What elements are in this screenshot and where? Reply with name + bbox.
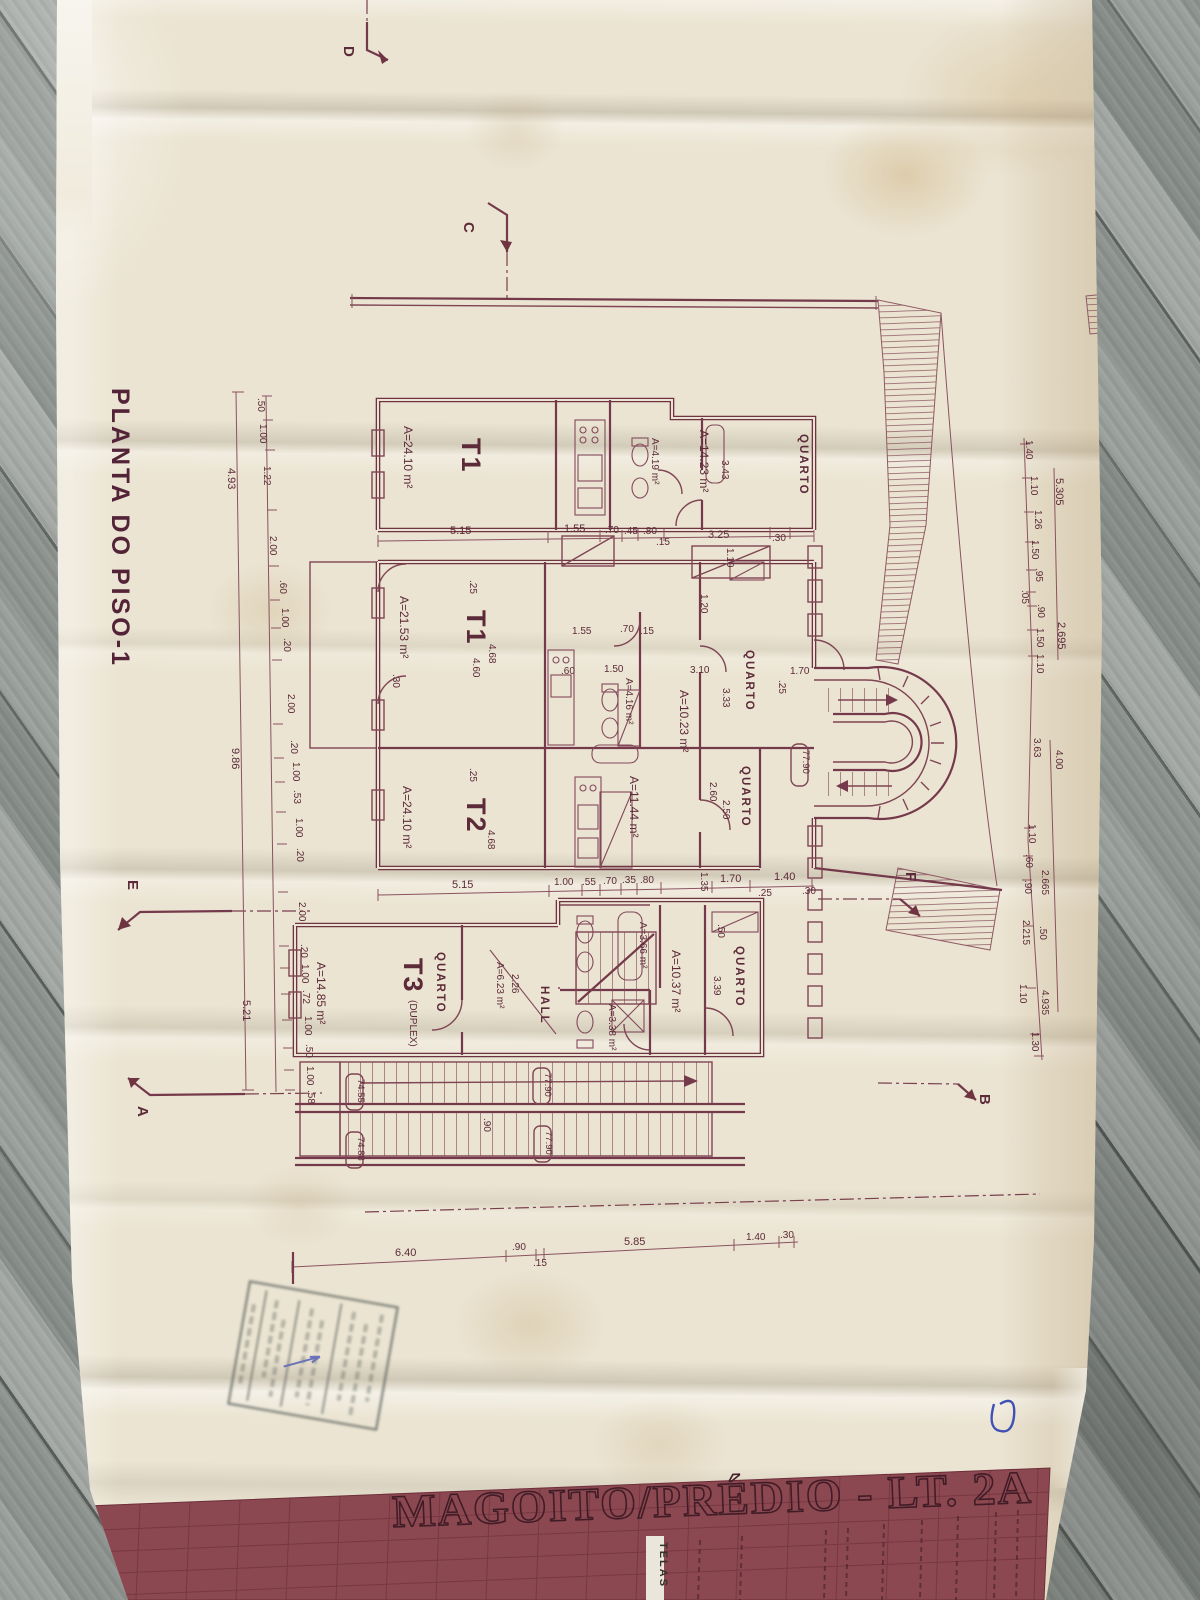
dim-label: 2.60 bbox=[707, 782, 718, 802]
section-marker-a: A bbox=[128, 1078, 322, 1117]
dim-label: .60 bbox=[1023, 854, 1034, 868]
dim-label: 1.20 bbox=[698, 594, 709, 614]
dim-label: 3.25 bbox=[708, 529, 729, 541]
section-marker-c: C bbox=[460, 203, 512, 300]
dim-label: .25 bbox=[467, 580, 478, 594]
dim-total: 5.305 bbox=[1053, 478, 1065, 506]
level-7488: 74.88 bbox=[355, 1137, 366, 1161]
dim-label: 1.22 bbox=[261, 466, 272, 486]
photo-of-floor-plan: D C E A F bbox=[0, 0, 1200, 1600]
dim-label: .58 bbox=[305, 1090, 316, 1104]
dim-label: 2.00 bbox=[285, 694, 296, 714]
dim-label: .90 bbox=[512, 1242, 526, 1253]
section-marker-b: B bbox=[878, 1083, 993, 1105]
dimension-chain-right: 5.305 2.695 1.40 1.10 1.26 1.50 .95 .05 … bbox=[1017, 438, 1067, 1060]
unit-label-t1-mid: T1 bbox=[461, 610, 491, 646]
dim-label: 1.00 bbox=[304, 1066, 315, 1086]
dim-label: 1.55 bbox=[564, 523, 585, 535]
dim-label: 1.40 bbox=[774, 871, 795, 883]
dim-label: 1.55 bbox=[572, 626, 592, 637]
dim-label: .90 bbox=[481, 1118, 492, 1132]
section-letter-c: C bbox=[460, 222, 477, 233]
dim-label: .35 bbox=[622, 875, 636, 886]
dim-total: 9.86 bbox=[229, 748, 241, 769]
dim-label: 4.60 bbox=[470, 658, 481, 678]
dim-label: 1.00 bbox=[299, 964, 310, 984]
dim-label: .50 bbox=[715, 924, 726, 938]
level-7455: 74.55 bbox=[355, 1079, 366, 1103]
section-letter-f: F bbox=[902, 872, 919, 881]
blue-pen-mark bbox=[992, 1401, 1015, 1432]
dim-label: 1.00 bbox=[554, 877, 574, 888]
dim-label: 1.10 bbox=[1017, 984, 1028, 1004]
section-letter-a: A bbox=[134, 1106, 151, 1117]
unit-labels: T1 A=24.10 m² T1 A=21.53 m² T2 A=24.10 m… bbox=[314, 426, 491, 1047]
dim-label: .70 bbox=[603, 876, 617, 887]
dim-label: 1.35 bbox=[698, 872, 709, 892]
dim-label: .50 bbox=[303, 1044, 314, 1058]
level-7790-upper-flight: 77.90 bbox=[542, 1073, 553, 1097]
dim-label: 3.43 bbox=[719, 460, 730, 480]
level-7790-stair: 77.90 bbox=[800, 750, 811, 774]
main-staircase: 77.90 bbox=[791, 667, 956, 819]
dim-label: 3.10 bbox=[690, 665, 710, 676]
dim-label: 5.15 bbox=[450, 525, 471, 537]
dim-label: 1.70 bbox=[720, 873, 741, 885]
dim-stair-width: 2.26 bbox=[509, 974, 520, 994]
dim-label: 1.40 bbox=[746, 1232, 766, 1243]
dim-label: .20 bbox=[298, 944, 309, 958]
unit-area-t3: A=14.85 m² bbox=[314, 962, 328, 1024]
dim-label: .45 bbox=[624, 526, 638, 537]
dim-label: .70 bbox=[620, 624, 634, 635]
dim-label: .05 bbox=[1019, 590, 1030, 604]
dim-label: 6.40 bbox=[395, 1247, 416, 1259]
area-bath-b: A=3.66 m² bbox=[637, 922, 648, 969]
blueprint-sheet: D C E A F bbox=[0, 0, 1200, 1600]
dimension-chain-top: 5.15 1.55 .70 .45 .80 3.25 .30 3.43 1.10… bbox=[378, 460, 814, 568]
unit-suffix-t3: (DUPLEX) bbox=[407, 1000, 418, 1047]
dim-label: .95 bbox=[1033, 568, 1044, 582]
unit-area-t1-top: A=24.10 m² bbox=[401, 426, 415, 488]
dim-label: 1.50 bbox=[1029, 540, 1040, 560]
section-letter-b: B bbox=[976, 1094, 993, 1105]
unit-label-t2: T2 bbox=[461, 798, 491, 834]
dim-label: .25 bbox=[467, 768, 478, 782]
dim-label: .80 bbox=[643, 526, 657, 537]
area-bath-top: A=4.19 m² bbox=[649, 438, 660, 485]
dim-label: .20 bbox=[294, 848, 305, 862]
room-label-quarto-3: QUARTO bbox=[739, 766, 751, 828]
dim-label: 2.665 bbox=[1039, 870, 1050, 895]
dim-label: .30 bbox=[802, 886, 816, 897]
dim-label: 1.00 bbox=[302, 1016, 313, 1036]
dim-label: 2.50 bbox=[720, 800, 731, 820]
area-bed-b: A=11.44 m² bbox=[627, 776, 641, 837]
dim-label: 2.215 bbox=[1020, 920, 1031, 945]
unit-label-t1-top: T1 bbox=[456, 438, 486, 474]
dim-label: .50 bbox=[255, 398, 266, 412]
unit-area-t1-mid: A=21.53 m² bbox=[397, 596, 411, 658]
dim-label: 1.10 bbox=[1028, 476, 1039, 496]
dim-total: 5.21 bbox=[240, 1000, 252, 1021]
dim-label: 4.935 bbox=[1039, 990, 1050, 1015]
dim-label: .15 bbox=[656, 537, 670, 548]
reference-line bbox=[365, 1194, 1040, 1212]
dim-label: .70 bbox=[605, 525, 619, 536]
area-bath-mid: A=4.16 m² bbox=[623, 678, 634, 725]
dim-label: 5.85 bbox=[624, 1236, 645, 1248]
dim-label: 1.00 bbox=[293, 818, 304, 838]
dimension-chain-bottom: 6.40 .90 .15 5.85 1.40 .30 bbox=[292, 1230, 798, 1284]
dim-label: 2.00 bbox=[267, 536, 278, 556]
dim-label: 3.33 bbox=[720, 688, 731, 708]
unit-label-t3: T3 bbox=[398, 958, 428, 994]
dim-label: .30 bbox=[772, 533, 786, 544]
room-label-quarto-4: QUARTO bbox=[434, 952, 446, 1014]
dim-label: 1.30 bbox=[1029, 1032, 1040, 1052]
dim-label: 1.00 bbox=[279, 608, 290, 628]
dim-label: 4.00 bbox=[1053, 750, 1064, 770]
floor-plan-drawing: D C E A F bbox=[0, 0, 1200, 1600]
dim-label: .90 bbox=[1022, 880, 1033, 894]
dim-label: 1.10 bbox=[1034, 654, 1045, 674]
dim-label: .72 bbox=[300, 990, 311, 1004]
dim-label: 3.63 bbox=[1031, 738, 1042, 758]
dim-label: .20 bbox=[281, 638, 292, 652]
area-bed-top: A=14.23 m² bbox=[697, 430, 711, 492]
dim-label: .30 bbox=[390, 674, 401, 688]
dim-label: 1.00 bbox=[290, 762, 301, 782]
dim-label: .50 bbox=[1037, 926, 1048, 940]
telas-tag: TELAS bbox=[657, 1542, 669, 1588]
unit-area-t2: A=24.10 m² bbox=[400, 786, 414, 848]
section-marker-d: D bbox=[340, 0, 388, 64]
drawing-title: PLANTA DO PISO-1 bbox=[106, 388, 134, 668]
title-block: MAGOITO/PRÉDIO - LT. 2A TELAS bbox=[86, 1461, 1050, 1600]
dim-label: 1.50 bbox=[604, 664, 624, 675]
room-label-hall: HALL bbox=[538, 986, 550, 1025]
dimension-chain-left: 4.93 9.86 5.21 .50 1.00 1.22 2.00 .60 1.… bbox=[225, 392, 316, 1104]
area-bed-c: A=10.37 m² bbox=[669, 950, 683, 1012]
exterior-stairs: 74.55 77.90 74.88 77.90 .90 bbox=[295, 1062, 745, 1168]
area-bed-a: A=10.23 m² bbox=[677, 690, 691, 752]
dim-label: .80 bbox=[640, 875, 654, 886]
dim-label: 1.40 bbox=[1023, 440, 1034, 460]
dim-label: .53 bbox=[291, 790, 302, 804]
dimension-chain-middle: 5.15 1.00 .55 .70 .35 .80 1.35 1.70 1.40… bbox=[378, 871, 816, 901]
area-wc: A=3.38 m² bbox=[606, 1004, 617, 1051]
dim-total: 4.93 bbox=[225, 468, 237, 489]
dim-label: 1.70 bbox=[790, 666, 810, 677]
dim-label: .25 bbox=[776, 680, 787, 694]
dim-label: 1.00 bbox=[257, 424, 268, 444]
dim-label: 1.50 bbox=[1034, 628, 1045, 648]
approval-stamp bbox=[228, 1281, 397, 1429]
dim-label: .25 bbox=[758, 888, 772, 899]
section-letter-e: E bbox=[124, 880, 141, 890]
dim-label: .30 bbox=[780, 1230, 794, 1241]
dim-label: 2.00 bbox=[296, 902, 307, 922]
dim-label: .55 bbox=[582, 877, 596, 888]
section-marker-e: E bbox=[118, 880, 310, 930]
level-7790-lower-flight: 77.90 bbox=[543, 1131, 554, 1155]
dim-label: 5.15 bbox=[452, 879, 473, 891]
dim-label: .60 bbox=[561, 666, 575, 677]
area-duplex-stair: A=6.23 m² bbox=[494, 962, 505, 1009]
dim-label: .60 bbox=[277, 580, 288, 594]
dim-label: .90 bbox=[1035, 604, 1046, 618]
dim-label: .15 bbox=[640, 626, 654, 637]
dim-label: 1.10 bbox=[724, 548, 735, 568]
dim-label: 1.10 bbox=[1026, 824, 1037, 844]
room-label-quarto-1: QUARTO bbox=[797, 434, 809, 496]
dim-label: .15 bbox=[533, 1258, 547, 1269]
dim-label: 4.68 bbox=[486, 644, 497, 664]
section-letter-d: D bbox=[340, 46, 357, 57]
dim-total: 2.695 bbox=[1055, 622, 1067, 650]
dim-label: 1.26 bbox=[1032, 510, 1043, 530]
dim-label: 3.39 bbox=[711, 976, 722, 996]
room-label-quarto-2: QUARTO bbox=[743, 650, 755, 712]
dim-label: .20 bbox=[288, 740, 299, 754]
room-label-quarto-5: QUARTO bbox=[733, 946, 745, 1008]
